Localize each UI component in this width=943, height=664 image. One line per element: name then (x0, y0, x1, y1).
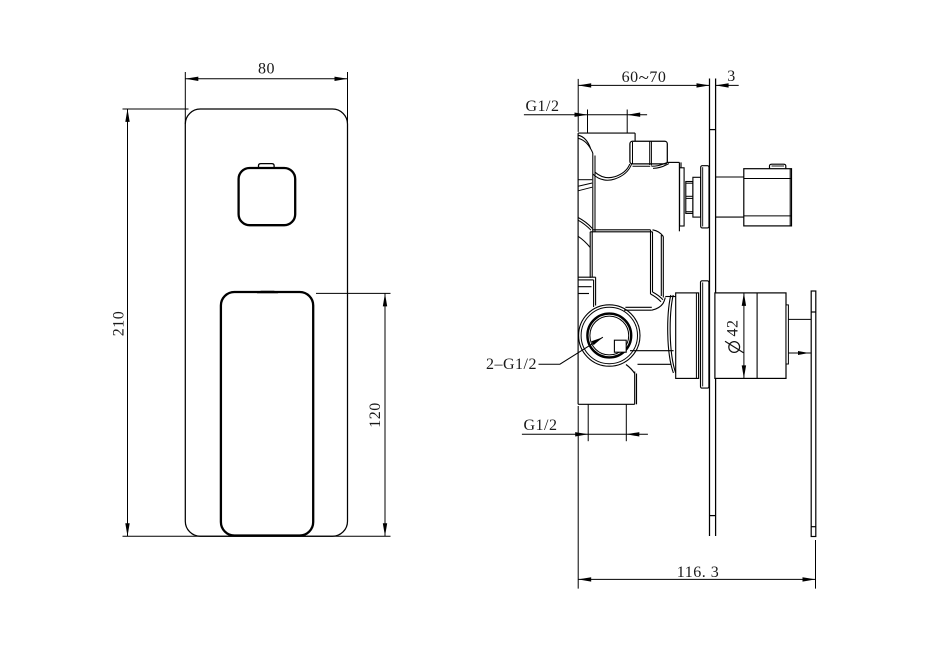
svg-text:120: 120 (367, 402, 384, 428)
svg-text:80: 80 (258, 61, 275, 78)
svg-text:G1/2: G1/2 (524, 417, 558, 434)
svg-text:42: 42 (725, 320, 742, 337)
svg-text:2–G1/2: 2–G1/2 (486, 356, 537, 373)
svg-text:60~70: 60~70 (622, 67, 667, 88)
svg-text:G1/2: G1/2 (526, 98, 560, 115)
svg-text:210: 210 (110, 311, 127, 337)
svg-text:116. 3: 116. 3 (677, 564, 719, 581)
svg-text:3: 3 (727, 68, 736, 85)
